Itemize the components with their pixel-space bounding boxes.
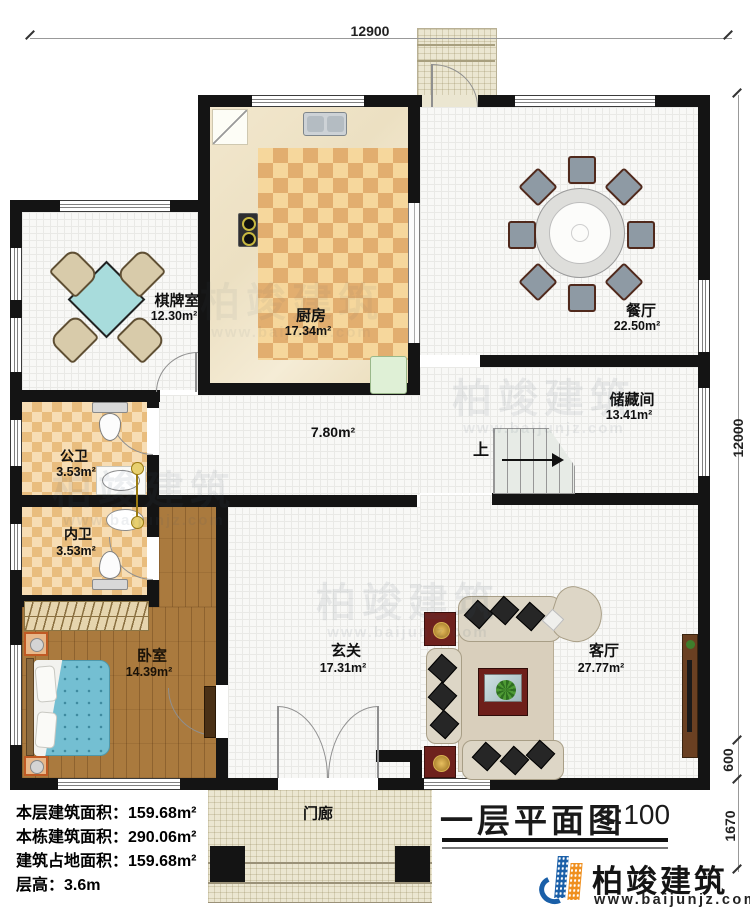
lamp-icon: [30, 760, 44, 774]
title-underline-thin: [442, 847, 668, 849]
burner-icon: [242, 232, 256, 246]
bedroom-area: 14.39m²: [126, 665, 173, 679]
toilet-icon: [92, 579, 128, 590]
top-dimension-label: 12900: [330, 23, 410, 39]
chair-icon: [508, 221, 536, 249]
kitchen-area: 17.34m²: [285, 324, 332, 338]
stairs-direction-arrow: [502, 459, 554, 461]
wardrobe: [24, 601, 149, 631]
ensuite-bathroom-label: 内卫: [64, 524, 92, 544]
corner-table: [424, 746, 456, 778]
wall: [216, 495, 228, 685]
window: [515, 95, 655, 107]
porch-column: [395, 846, 430, 882]
chair-icon: [568, 284, 596, 312]
chess-room-area: 12.30m²: [151, 309, 198, 323]
storage-room-area: 13.41m²: [606, 408, 653, 422]
public-bathroom-area: 3.53m²: [56, 465, 96, 479]
main-door-left-leaf: [277, 706, 279, 778]
plumbing-riser-icon: [131, 516, 144, 529]
stat-floor-area: 本层建筑面积：159.68m²: [16, 802, 197, 826]
living-room-area: 27.77m²: [578, 661, 625, 675]
right-bottom-dimension-label: 1670: [722, 798, 738, 854]
tv-icon: [687, 660, 692, 732]
plan-scale: 1:100: [600, 799, 670, 831]
wall: [198, 107, 210, 395]
stairs-arrow-head: [552, 453, 564, 467]
title-underline: [442, 838, 668, 842]
toilet-icon: [92, 402, 128, 413]
plan-title: 一层平面图: [440, 794, 625, 842]
bedroom-door-leaf: [204, 686, 216, 738]
window: [10, 420, 22, 466]
chair-icon: [568, 156, 596, 184]
window: [252, 95, 364, 107]
window: [10, 645, 22, 745]
window: [10, 524, 22, 570]
wall: [480, 355, 710, 367]
wall: [147, 395, 159, 408]
wall: [408, 107, 420, 203]
nightstand: [24, 632, 48, 656]
floor-plan-page: 12900 12000 600 1670: [0, 0, 750, 922]
porch-label: 门廊: [303, 803, 333, 824]
living-room-label: 客厅: [589, 640, 619, 661]
stairs-up-label: 上: [473, 436, 489, 460]
burner-icon: [242, 217, 256, 231]
wall: [22, 495, 147, 507]
window: [698, 388, 710, 476]
refrigerator: [370, 356, 407, 394]
bed-headboard: [26, 658, 34, 756]
wall: [410, 750, 422, 778]
right-mid-dimension-label: 600: [720, 738, 736, 782]
foyer-area: 17.31m²: [320, 661, 367, 675]
plant-icon: [496, 680, 516, 700]
public-bathroom-label: 公卫: [60, 446, 88, 466]
wall: [147, 455, 159, 537]
foyer-label: 玄关: [331, 640, 361, 661]
brand-url: www.baijunjz.com: [594, 892, 750, 908]
corner-table: [424, 612, 456, 646]
kitchen-corner-cabinet: [212, 109, 248, 145]
wall: [492, 493, 710, 505]
main-door-opening: [278, 778, 378, 790]
back-porch-step-line: [417, 44, 495, 46]
foyer-floor: [228, 507, 420, 778]
dining-table-hub: [571, 224, 589, 242]
hallway-area: 7.80m²: [311, 424, 355, 440]
chess-room-label: 棋牌室: [154, 290, 199, 311]
table-medallion: [433, 755, 450, 772]
right-dimension-label: 12000: [730, 393, 746, 483]
stove: [238, 213, 258, 247]
pillow: [34, 711, 57, 749]
lamp-icon: [30, 638, 44, 652]
kitchen-label: 厨房: [296, 305, 326, 326]
stat-floor-height: 层高：3.6m: [16, 874, 197, 898]
wall: [216, 738, 228, 778]
dimension-tick: [732, 88, 742, 98]
storage-room-label: 储藏间: [609, 389, 654, 410]
chess-room-door-leaf: [195, 352, 197, 392]
chair-icon: [627, 221, 655, 249]
dimension-tick: [732, 864, 742, 874]
ensuite-bathroom-area: 3.53m²: [56, 544, 96, 558]
porch-column: [210, 846, 245, 882]
bedroom-corridor-floor: [159, 507, 216, 607]
plant-icon: [686, 640, 695, 649]
plumbing-riser-icon: [131, 462, 144, 475]
sink-basin: [327, 116, 344, 132]
window: [58, 778, 180, 790]
porch-step-line: [208, 882, 432, 884]
sink-basin: [307, 116, 324, 132]
bedroom-label: 卧室: [137, 645, 167, 666]
plumbing-riser-icon: [136, 468, 138, 520]
stat-building-area: 本栋建筑面积：290.06m²: [16, 826, 197, 850]
dining-room-label: 餐厅: [626, 300, 656, 321]
toilet-icon: [99, 551, 121, 579]
logo-tower-orange: [567, 863, 582, 900]
dining-room-area: 22.50m²: [614, 319, 661, 333]
wall: [228, 495, 417, 507]
table-medallion: [433, 622, 450, 639]
window: [10, 248, 22, 300]
stats-block: 本层建筑面积：159.68m² 本栋建筑面积：290.06m² 建筑占地面积：1…: [16, 802, 197, 898]
brand-logo-icon: [539, 854, 589, 908]
stat-footprint-area: 建筑占地面积：159.68m²: [16, 850, 197, 874]
window: [60, 200, 170, 212]
kitchen-sliding-door: [408, 203, 420, 343]
window: [698, 280, 710, 352]
back-porch-step-line: [417, 60, 495, 62]
pillow: [34, 665, 57, 703]
hallway-floor: [159, 395, 420, 495]
right-dimension-line: [738, 95, 739, 872]
kitchen-tile-floor: [258, 148, 408, 360]
back-door-leaf: [431, 64, 433, 107]
wall: [10, 390, 160, 402]
main-door-right-leaf: [377, 706, 379, 778]
window: [10, 318, 22, 372]
kitchen-sink: [303, 112, 347, 136]
nightstand: [24, 756, 48, 776]
